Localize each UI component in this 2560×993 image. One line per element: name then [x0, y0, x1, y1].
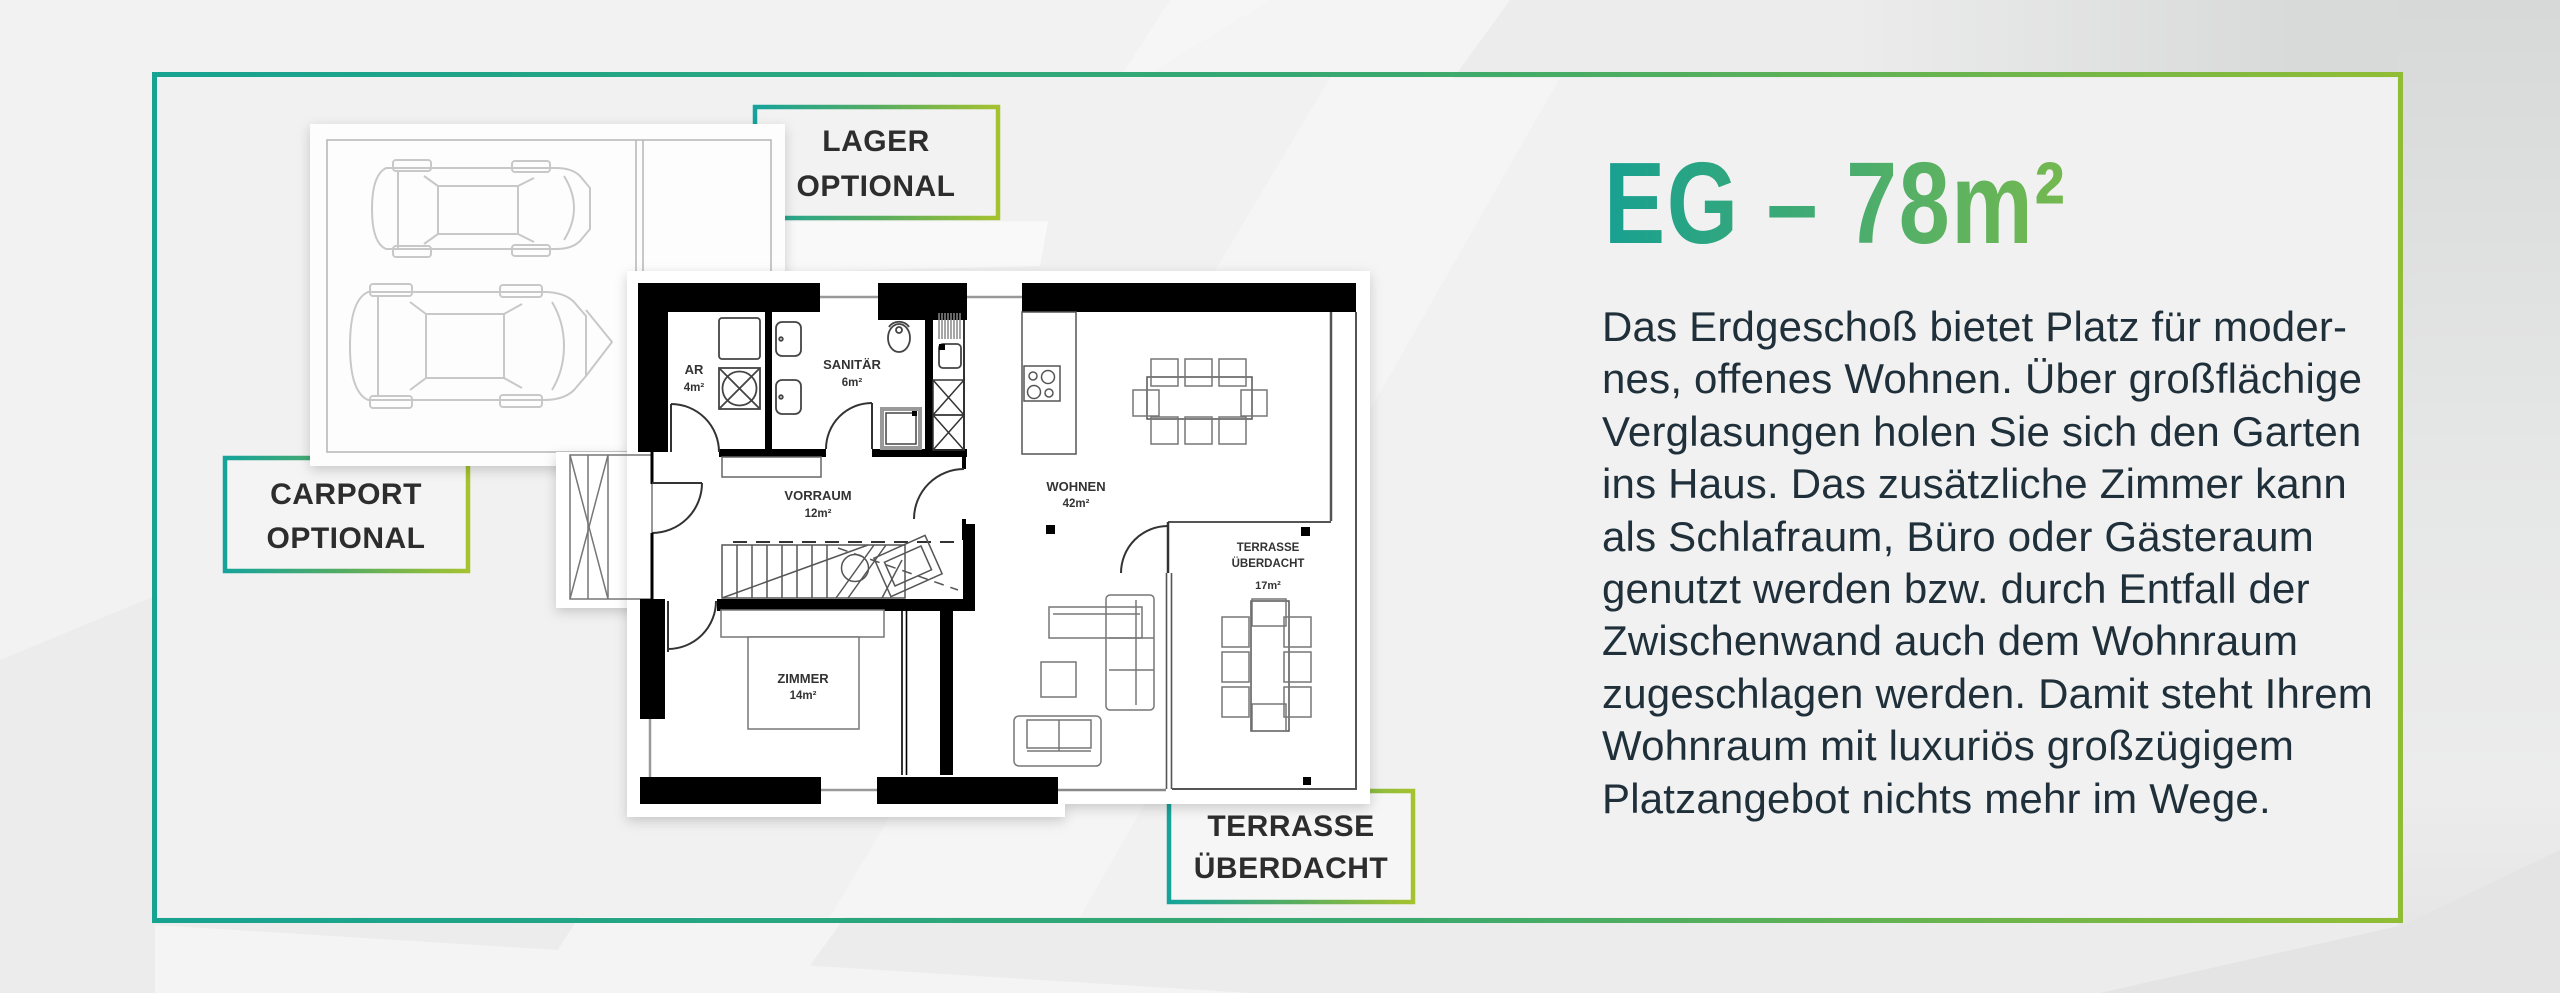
svg-text:42m²: 42m² — [1063, 498, 1090, 510]
svg-text:6m²: 6m² — [842, 377, 863, 389]
svg-text:ÜBERDACHT: ÜBERDACHT — [1232, 557, 1305, 570]
svg-text:VORRAUM: VORRAUM — [784, 488, 851, 503]
svg-text:WOHNEN: WOHNEN — [1046, 479, 1105, 494]
svg-text:SANITÄR: SANITÄR — [823, 357, 881, 372]
svg-text:TERRASSE: TERRASSE — [1207, 810, 1374, 843]
svg-text:OPTIONAL: OPTIONAL — [797, 170, 956, 203]
svg-text:CARPORT: CARPORT — [270, 478, 422, 511]
svg-text:OPTIONAL: OPTIONAL — [267, 522, 426, 555]
svg-text:AR: AR — [685, 362, 704, 377]
svg-text:12m²: 12m² — [805, 508, 832, 520]
svg-text:LAGER: LAGER — [822, 125, 930, 158]
svg-text:4m²: 4m² — [684, 382, 705, 394]
svg-text:17m²: 17m² — [1255, 580, 1281, 592]
svg-text:TERRASSE: TERRASSE — [1237, 542, 1300, 554]
svg-text:14m²: 14m² — [790, 690, 817, 702]
svg-text:EG – 78m²: EG – 78m² — [1604, 139, 2066, 269]
svg-text:ÜBERDACHT: ÜBERDACHT — [1194, 852, 1389, 885]
svg-text:ZIMMER: ZIMMER — [777, 671, 829, 686]
